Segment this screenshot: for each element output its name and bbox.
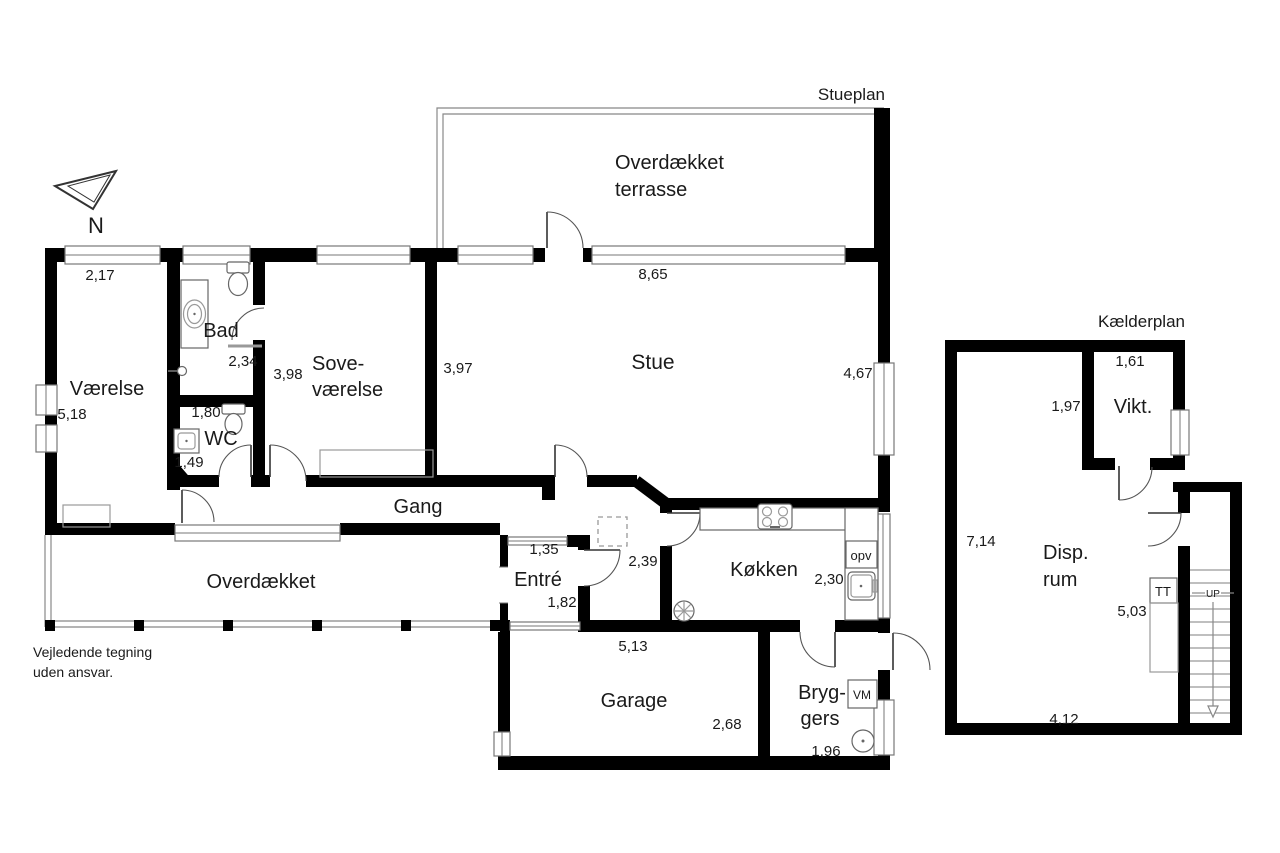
dim-stue-right: 4,67 xyxy=(843,365,872,382)
floor-drain-fan xyxy=(674,601,694,621)
window xyxy=(510,622,580,630)
dim-bad-h: 2,34 xyxy=(228,353,257,370)
dim-entre-h: 1,82 xyxy=(547,594,576,611)
window xyxy=(175,525,340,541)
dryer-label: TT xyxy=(1155,584,1171,599)
front-door-opening xyxy=(499,567,508,603)
room-label-bryggers-2: gers xyxy=(801,708,840,730)
terrace-right-wall xyxy=(874,108,890,254)
window xyxy=(458,246,533,264)
porch-post xyxy=(134,620,144,631)
dim-sove-h: 3,98 xyxy=(273,366,302,383)
floorplan-drawing: Stueplan Kælderplan Overdækket terrasse … xyxy=(0,0,1280,853)
appliance-counter xyxy=(1150,603,1178,672)
washbasin-wc xyxy=(174,429,199,453)
window xyxy=(874,363,894,455)
porch-post xyxy=(45,620,55,631)
koekken-door xyxy=(667,513,700,546)
chimney-dashed xyxy=(598,517,627,546)
dim-vaerelse-h: 5,18 xyxy=(57,406,86,423)
stove xyxy=(758,504,792,529)
room-label-sove-2: værelse xyxy=(312,379,383,401)
window xyxy=(65,246,160,264)
room-label-stue: Stue xyxy=(631,351,674,374)
porch-post xyxy=(223,620,233,631)
room-label-bad: Bad xyxy=(203,320,239,342)
window xyxy=(877,514,890,618)
room-label-garage: Garage xyxy=(601,690,668,712)
room-label-terrace-2: terrasse xyxy=(615,179,687,201)
dim-vikt-w: 1,61 xyxy=(1115,353,1144,370)
dishwasher-label: opv xyxy=(851,548,872,563)
dim-garage-h: 2,68 xyxy=(712,716,741,733)
window xyxy=(317,246,410,264)
porch-post xyxy=(312,620,322,631)
dim-vaerelse-w: 2,17 xyxy=(85,267,114,284)
dim-vikt-h: 1,97 xyxy=(1051,398,1080,415)
disclaimer-line1: Vejledende tegning xyxy=(33,644,152,660)
room-label-wc: WC xyxy=(204,428,237,450)
dim-disp-w: 4,12 xyxy=(1049,711,1078,728)
bryggers-sink xyxy=(852,730,874,752)
room-label-entre: Entré xyxy=(514,569,562,591)
basement-plan-title: Kælderplan xyxy=(1098,312,1185,331)
room-label-terrace-1: Overdækket xyxy=(615,152,724,174)
toilet-bad xyxy=(227,262,249,296)
room-label-bryggers-1: Bryg- xyxy=(798,682,846,704)
dim-entre-w: 1,35 xyxy=(529,541,558,558)
window xyxy=(592,246,845,264)
window xyxy=(494,732,510,756)
stair-direction-arrow xyxy=(1208,706,1218,717)
soevaerelse-door xyxy=(270,445,306,481)
stairs-up-label: UP xyxy=(1206,589,1220,600)
room-label-disp-1: Disp. xyxy=(1043,542,1089,564)
terrace-door xyxy=(547,212,583,248)
room-label-koekken: Køkken xyxy=(730,559,798,581)
window xyxy=(36,425,57,452)
vaerelse-door xyxy=(182,490,214,523)
dim-hall-w: 2,39 xyxy=(628,553,657,570)
vikt-door xyxy=(1119,466,1152,500)
dim-wc-w: 1,80 xyxy=(191,404,220,421)
dim-bryggers-w: 1,96 xyxy=(811,743,840,760)
room-label-porch: Overdækket xyxy=(207,571,316,593)
washing-machine-label: VM xyxy=(853,688,871,702)
room-label-sove-1: Sove- xyxy=(312,353,364,375)
window xyxy=(1171,410,1189,455)
north-label: N xyxy=(88,213,104,238)
ground-plan-title: Stueplan xyxy=(818,85,885,104)
floorplan-page: Stueplan Kælderplan Overdækket terrasse … xyxy=(0,0,1280,853)
north-arrow-icon xyxy=(55,171,116,209)
dim-stue-left: 3,97 xyxy=(443,360,472,377)
dim-garage-w: 5,13 xyxy=(618,638,647,655)
window xyxy=(183,246,250,264)
stue-door xyxy=(555,445,587,477)
kitchen-sink xyxy=(848,572,877,600)
dim-stair-h: 5,03 xyxy=(1117,603,1146,620)
disclaimer-line2: uden ansvar. xyxy=(33,664,113,680)
porch-post xyxy=(401,620,411,631)
ground-floor-plan xyxy=(36,108,930,770)
entre-door xyxy=(584,550,620,586)
room-label-vikt: Vikt. xyxy=(1114,396,1153,418)
window xyxy=(36,385,57,415)
room-label-gang: Gang xyxy=(394,496,443,518)
room-label-disp-2: rum xyxy=(1043,569,1077,591)
dim-koekken-w: 2,30 xyxy=(814,571,843,588)
exterior-door xyxy=(893,633,930,670)
stair-door xyxy=(1148,513,1181,546)
dim-stue-top: 8,65 xyxy=(638,266,667,283)
dim-wc-h: 1,49 xyxy=(174,454,203,471)
room-label-vaerelse: Værelse xyxy=(70,378,144,400)
bryggers-door xyxy=(800,632,835,667)
wardrobe xyxy=(320,450,433,477)
dim-disp-h: 7,14 xyxy=(966,533,995,550)
porch-post xyxy=(490,620,500,631)
